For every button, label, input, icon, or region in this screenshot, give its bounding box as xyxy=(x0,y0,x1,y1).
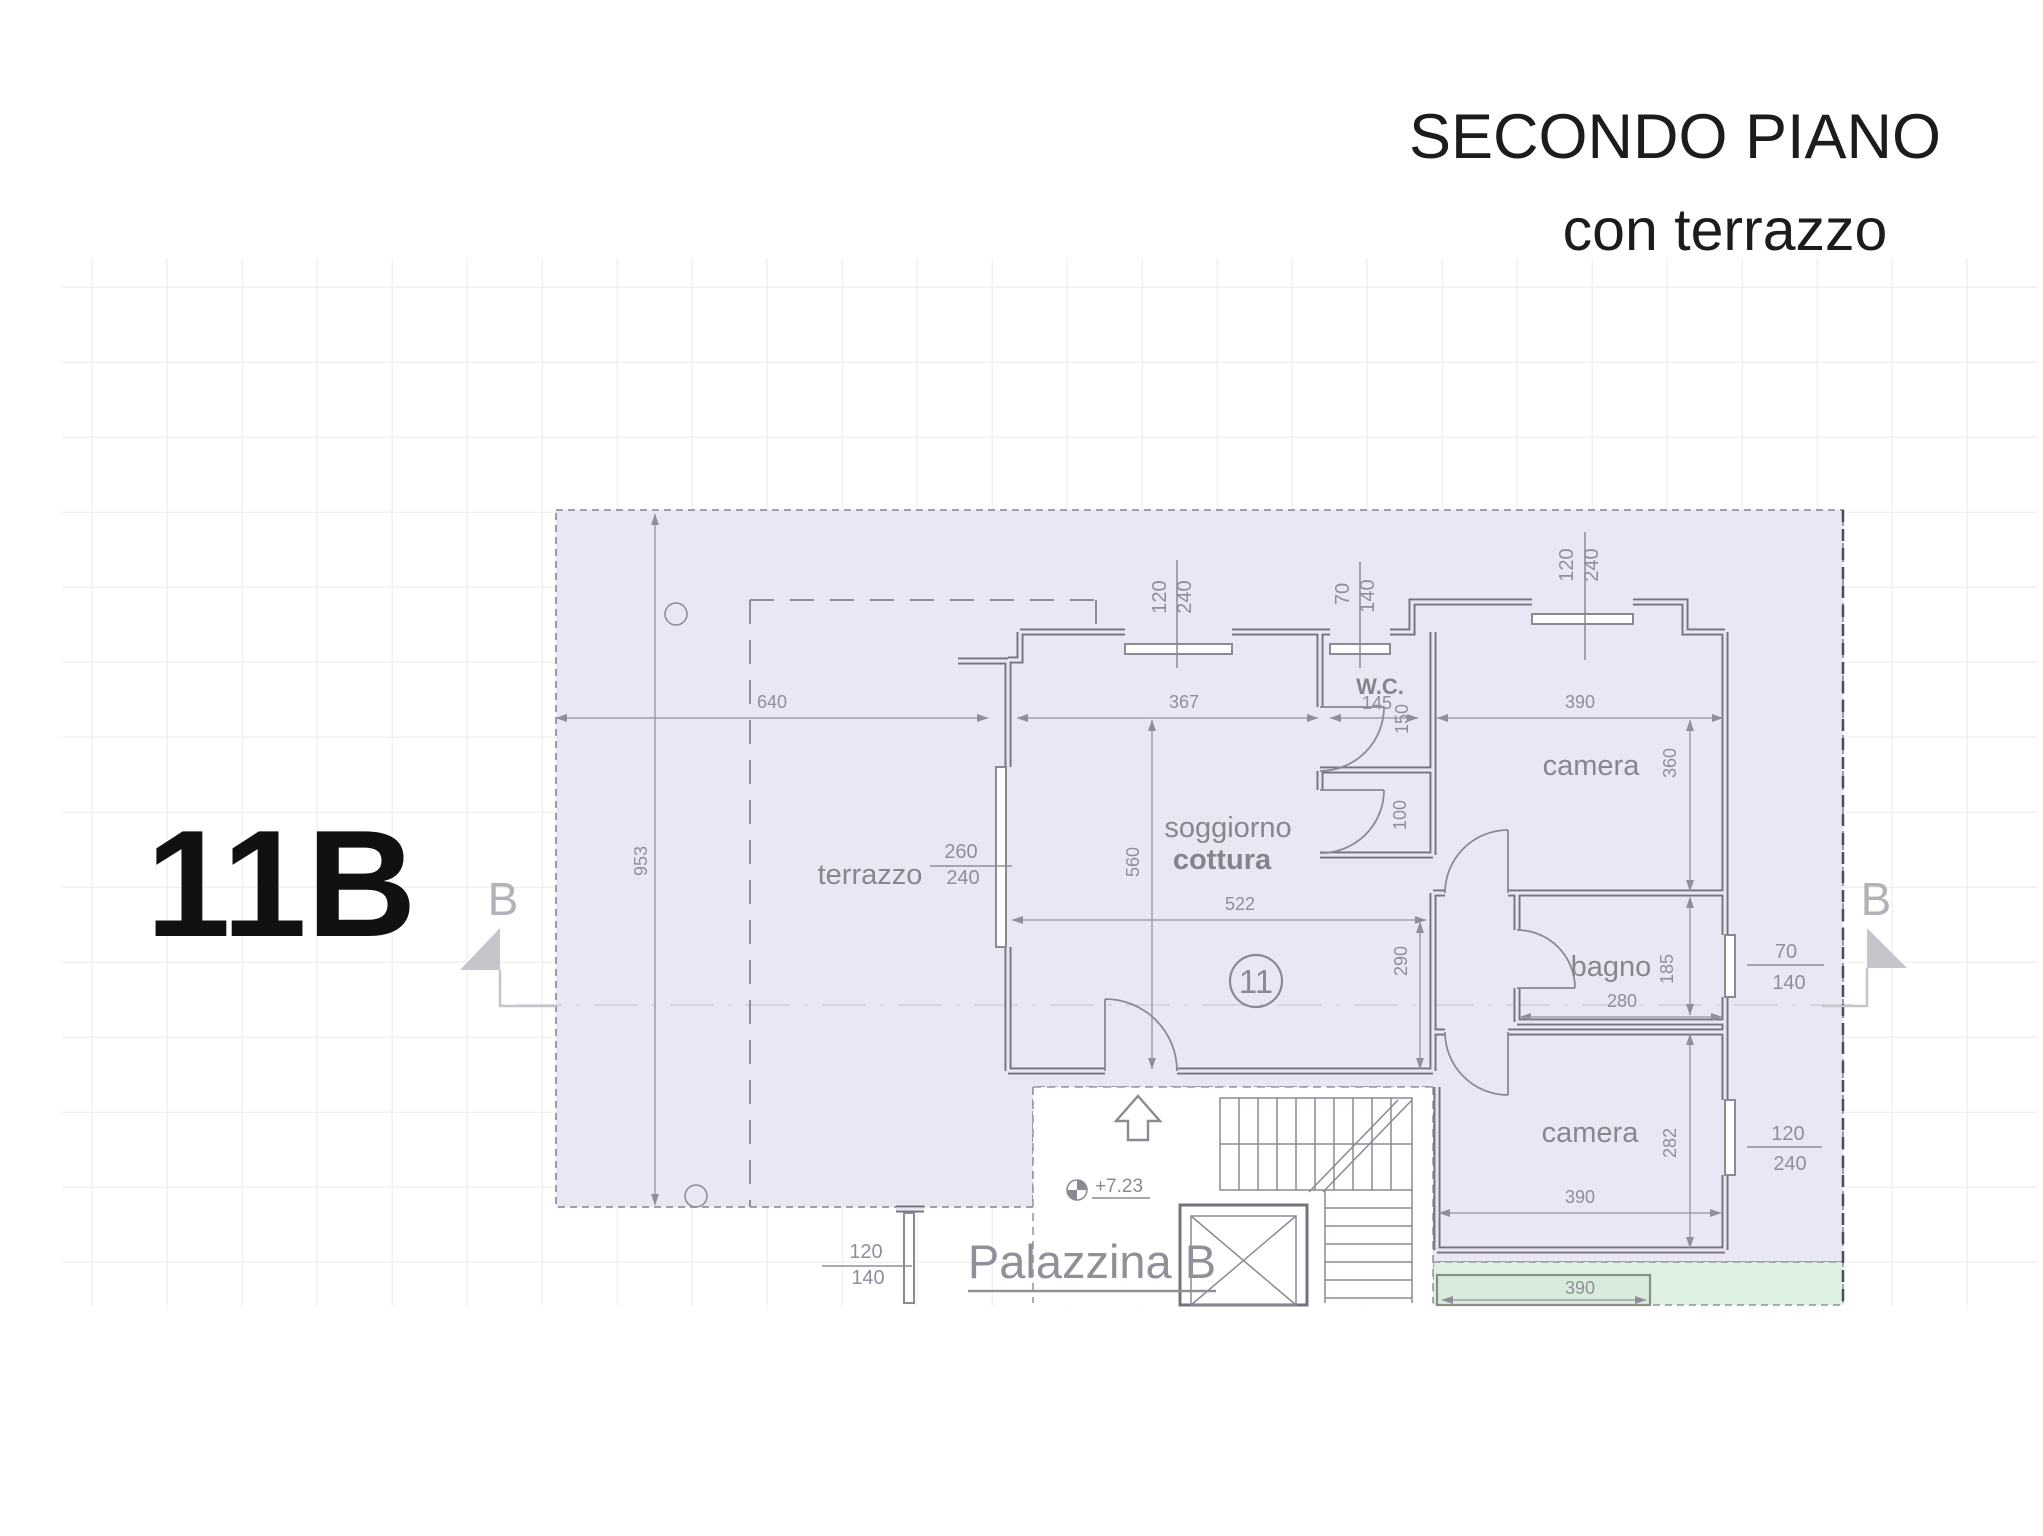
building-label: Palazzina B xyxy=(968,1235,1216,1291)
dim-terrace-width: 640 xyxy=(757,692,787,712)
camera-east-win-height: 240 xyxy=(1773,1153,1806,1175)
floorplan-page: 390 xyxy=(0,0,2043,1536)
dim-camera-top-depth: 360 xyxy=(1660,748,1680,778)
dim-hall-opening: 100 xyxy=(1390,800,1410,830)
page-subtitle: con terrazzo xyxy=(1563,197,1888,263)
room-label-camera-bottom: camera xyxy=(1542,1117,1640,1149)
dim-camera-top-width: 390 xyxy=(1565,692,1595,712)
room-label-soggiorno: soggiorno xyxy=(1164,812,1291,844)
dim-wc-width: 145 xyxy=(1362,693,1392,713)
stair-win-height: 140 xyxy=(851,1267,884,1289)
camera-east-win-width: 120 xyxy=(1771,1123,1804,1145)
dim-bagno-width: 280 xyxy=(1607,991,1637,1011)
camera-top-win-width: 120 xyxy=(1556,548,1578,581)
building-name: Palazzina B xyxy=(968,1235,1216,1288)
window-camera-east xyxy=(1725,1100,1735,1175)
dim-soggiorno-width: 522 xyxy=(1225,894,1255,914)
bagno-win-height: 140 xyxy=(1772,972,1805,994)
window-stairwell xyxy=(904,1213,914,1303)
floorplan-drawing: 390 xyxy=(0,0,2043,1536)
soggiorno-win-width: 120 xyxy=(1149,580,1171,613)
page-title: SECONDO PIANO xyxy=(1409,102,1941,172)
dim-camera-bottom-width: 390 xyxy=(1565,1187,1595,1207)
unit-label: 11B xyxy=(146,799,416,969)
camera-top-win-height: 240 xyxy=(1581,548,1603,581)
dim-soggiorno-top: 367 xyxy=(1169,692,1199,712)
dim-ingresso-depth: 290 xyxy=(1391,946,1411,976)
window-soggiorno-top xyxy=(1125,644,1232,654)
dim-bagno-depth: 185 xyxy=(1657,954,1677,984)
dim-balcony-width: 390 xyxy=(1565,1278,1595,1298)
dim-soggiorno-depth: 560 xyxy=(1123,847,1143,877)
window-bagno-east xyxy=(1725,935,1735,997)
bagno-win-width: 70 xyxy=(1775,941,1797,963)
wc-win-width: 70 xyxy=(1332,583,1354,605)
room-label-terrazzo: terrazzo xyxy=(818,859,923,891)
dim-terrace-depth: 953 xyxy=(631,846,651,876)
apartment-number: 11 xyxy=(1239,963,1273,1000)
dim-wc-depth: 150 xyxy=(1392,704,1412,734)
window-terrace-door xyxy=(996,767,1006,947)
soggiorno-win-height: 240 xyxy=(1174,580,1196,613)
room-label-camera-top: camera xyxy=(1543,750,1641,782)
terrace-door-width: 260 xyxy=(944,841,977,863)
window-camera-top xyxy=(1532,614,1633,624)
section-letter-right: B xyxy=(1861,873,1892,925)
room-label-bagno: bagno xyxy=(1571,951,1652,983)
dim-camera-bottom-depth: 282 xyxy=(1660,1128,1680,1158)
stair-win-width: 120 xyxy=(849,1241,882,1263)
balcony-area: 390 xyxy=(1433,1262,1843,1305)
section-letter-left: B xyxy=(488,873,519,925)
room-label-cottura: cottura xyxy=(1173,844,1272,876)
wc-win-height: 140 xyxy=(1357,579,1379,612)
elevation-value: +7.23 xyxy=(1095,1176,1143,1197)
terrace-door-height: 240 xyxy=(946,867,979,889)
